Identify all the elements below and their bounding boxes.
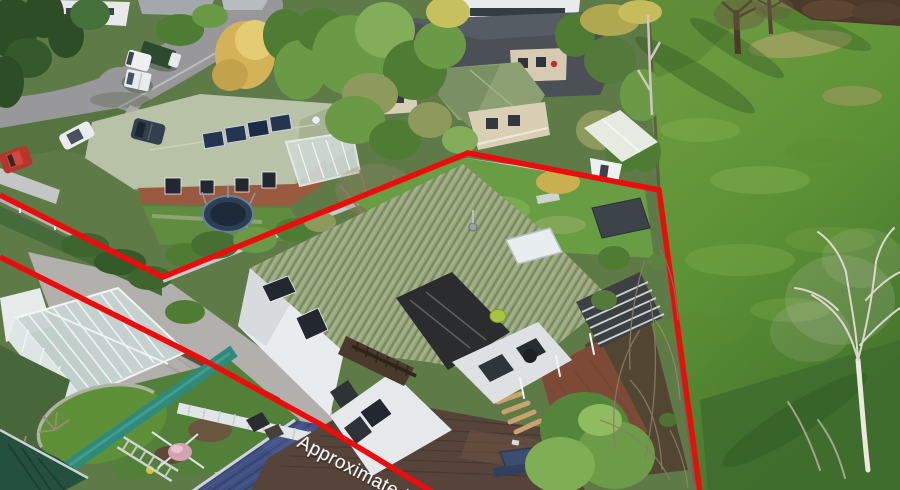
red-chimney [551, 61, 557, 67]
boundary-shrub-1 [598, 246, 630, 270]
aerial-property-photo: Approximate Indication Only [0, 0, 900, 490]
lime-beanbag [490, 310, 506, 323]
bbq [523, 349, 537, 363]
satellite-dish [312, 116, 320, 124]
boundary-shrub-2 [591, 290, 617, 310]
worn-dirt-path-2 [822, 86, 882, 106]
overhang-clump-2 [659, 413, 677, 427]
overhang-clump [647, 254, 667, 270]
chimney-flue [469, 223, 477, 231]
